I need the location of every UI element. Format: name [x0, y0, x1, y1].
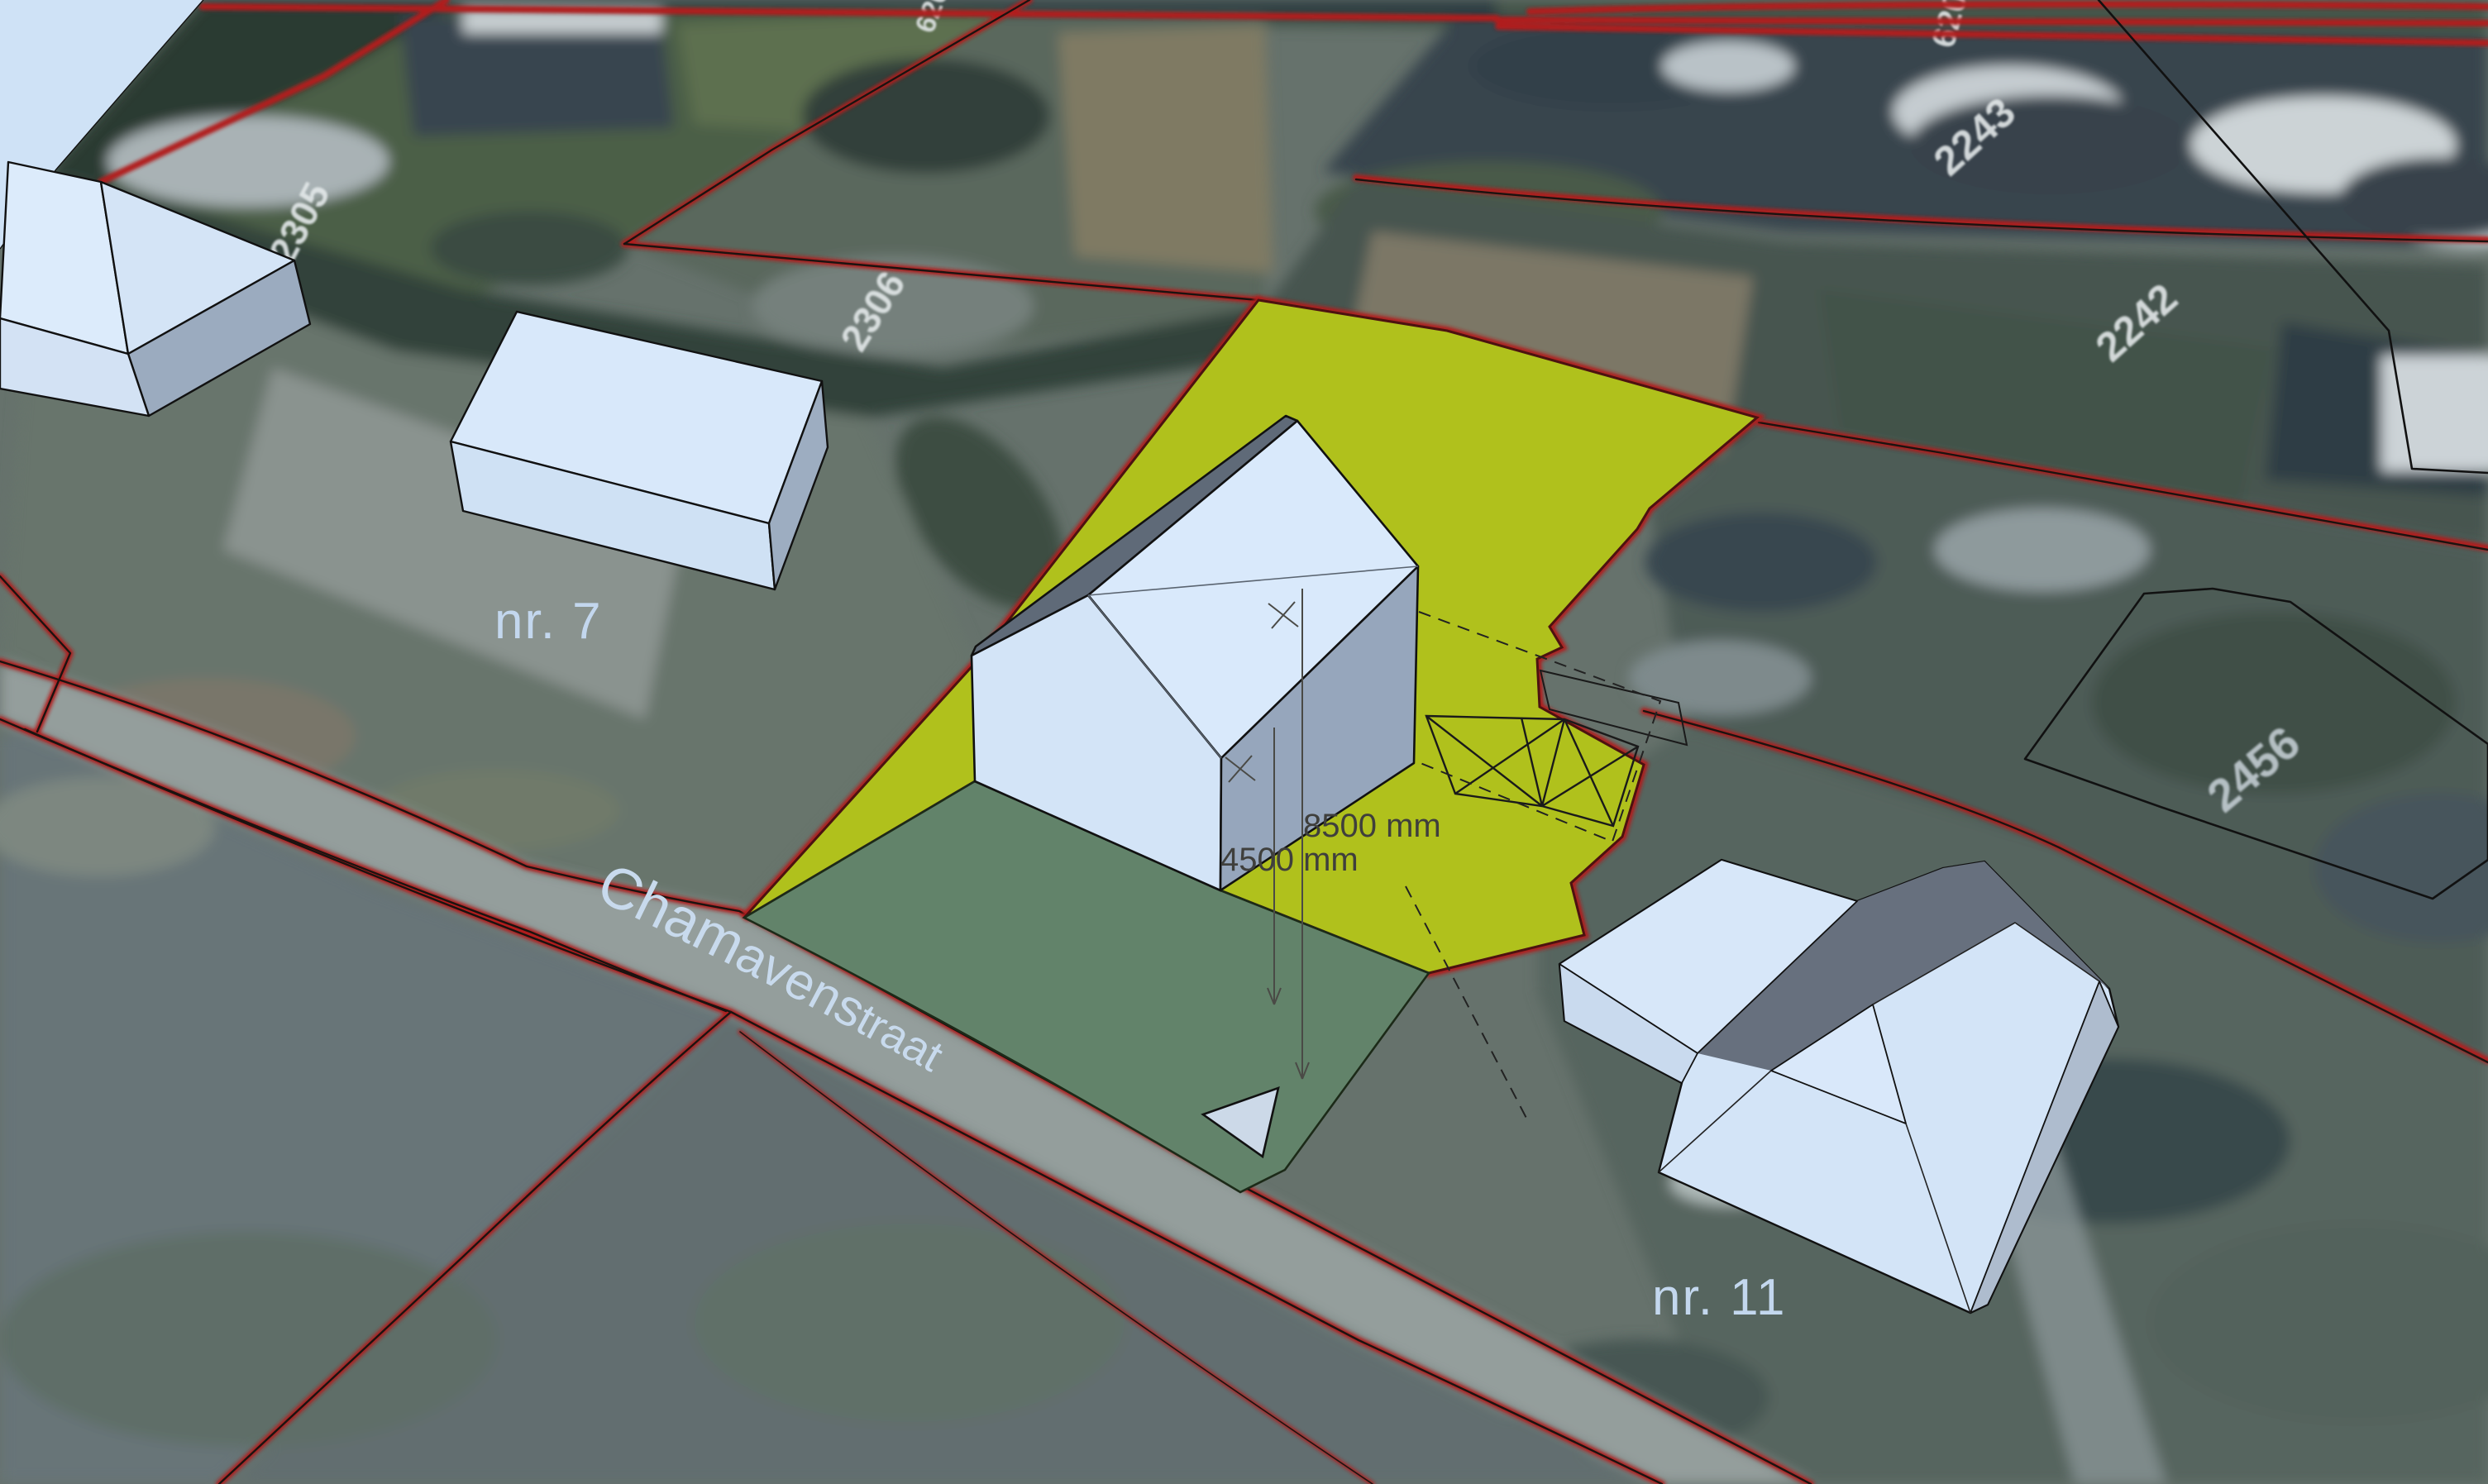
svg-text:nr. 11: nr. 11	[1652, 1269, 1787, 1326]
svg-text:nr. 7: nr. 7	[494, 593, 603, 650]
svg-text:8500 mm: 8500 mm	[1303, 808, 1441, 844]
svg-text:4500 mm: 4500 mm	[1220, 842, 1359, 878]
